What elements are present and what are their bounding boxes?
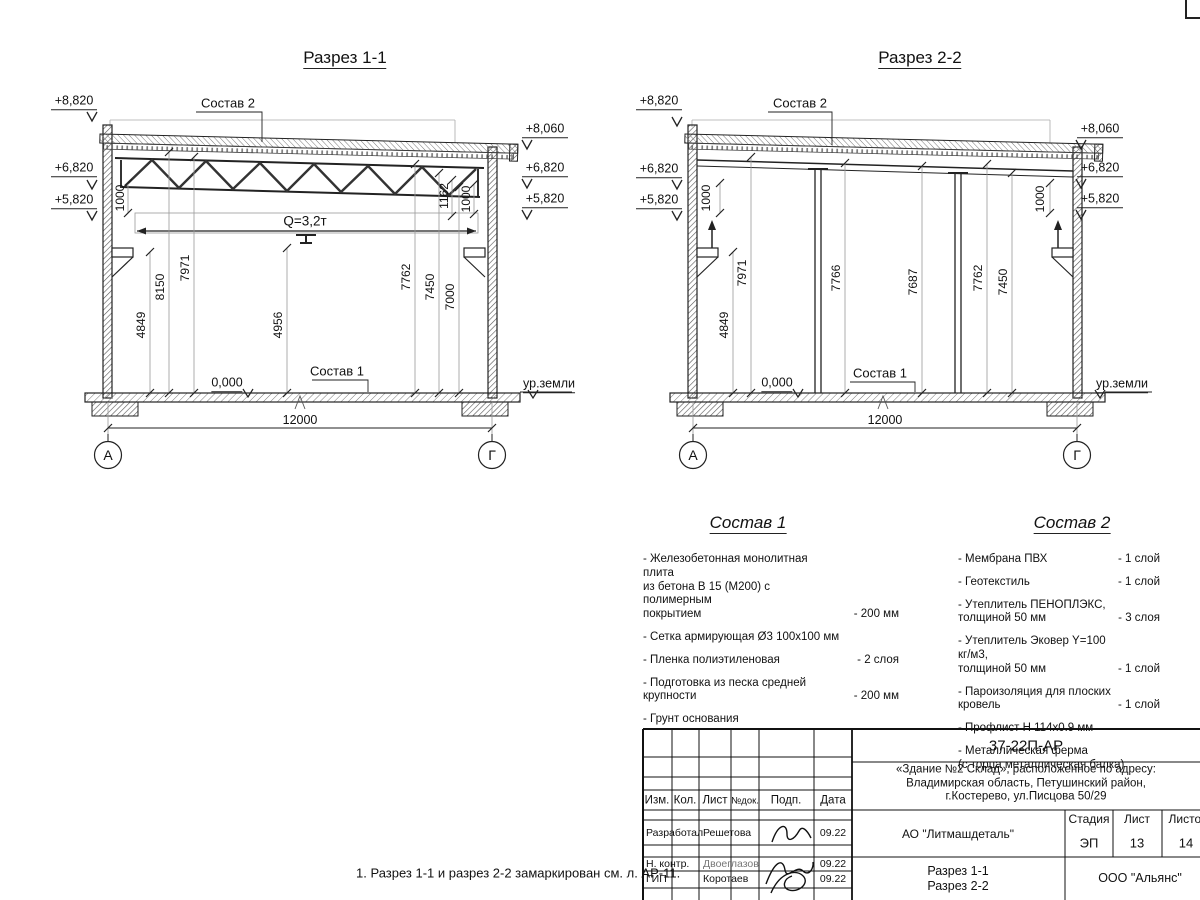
dim-label: 7450: [424, 274, 436, 301]
client-org: АО "Литмашдеталь": [902, 828, 1014, 840]
section1-axis-a: А: [103, 448, 112, 462]
col-header-ndok: №док.: [731, 796, 759, 806]
staff-role: Разработал: [646, 828, 703, 839]
list-item: - Геотекстиль - 1 слой: [958, 576, 1160, 590]
project-address-line3: г.Костерево, ул.Писцова 50/29: [946, 791, 1107, 803]
section1-zero-level: 0,000: [211, 376, 242, 392]
list-item: - Железобетонная монолитная плита из бет…: [643, 553, 899, 622]
elevation-mark: +5,820: [522, 192, 568, 208]
elevation-mark: +5,820: [1077, 192, 1123, 208]
sheet-value: 13: [1130, 837, 1144, 850]
dim-label: 7762: [400, 264, 412, 291]
elevation-mark: +6,820: [1077, 161, 1123, 177]
sheets-header: Листов: [1169, 813, 1200, 825]
staff-name: Решетова: [703, 828, 751, 839]
staff-date: 09.22: [820, 874, 846, 885]
dim-label: 7000: [444, 284, 456, 311]
list-item: - Мембрана ПВХ - 1 слой: [958, 553, 1160, 567]
elevation-mark: +8,060: [522, 122, 568, 138]
section2-ground-label: ур.земли: [1096, 377, 1148, 393]
elevation-mark: +8,820: [51, 94, 97, 110]
sheet-note: 1. Разрез 1-1 и разрез 2-2 замаркирован …: [356, 867, 680, 880]
frame-corner-mark: [1186, 0, 1200, 18]
staff-name: Коротаев: [703, 874, 748, 885]
dim-label: 1000: [114, 185, 126, 212]
staff-date: 09.22: [820, 828, 846, 839]
dim-label: 1000: [700, 185, 712, 212]
col-header-kol: Кол.: [674, 795, 697, 807]
section1-ground-label: ур.земли: [523, 377, 575, 393]
list-item: - Грунт основания: [643, 713, 899, 727]
section1-sostav2-label: Состав 2: [201, 97, 255, 110]
staff-role: Н. контр.: [646, 859, 689, 870]
design-company: ООО "Альянс": [1098, 872, 1182, 885]
project-address-line2: Владимирская область, Петушинский район,: [906, 778, 1146, 790]
section1-sostav1-label: Состав 1: [310, 365, 364, 378]
section2-sostav1-label: Состав 1: [853, 367, 907, 380]
list-item: - Сетка армирующая Ø3 100х100 мм: [643, 631, 899, 645]
dim-label: 7762: [972, 265, 984, 292]
dim-label: 4849: [718, 312, 730, 339]
list-item: - Пленка полиэтиленовая - 2 слоя: [643, 654, 899, 668]
elevation-mark: +6,820: [522, 161, 568, 177]
content-line1: Разрез 1-1: [927, 865, 988, 878]
section2-span-dim: 12000: [868, 414, 903, 427]
stage-header: Стадия: [1069, 813, 1110, 825]
drawing-sheet: Разрез 1-1 Состав 2 Состав 1 Q=3,2т 0,00…: [0, 0, 1200, 900]
list-item: - Пароизоляция для плоских кровель - 1 с…: [958, 686, 1160, 714]
dim-label: 4849: [135, 312, 147, 339]
section2-axis-g: Г: [1073, 448, 1081, 462]
col-header-data: Дата: [820, 795, 845, 807]
sostav1-heading: Состав 1: [710, 514, 787, 534]
signature-razrabotal: [772, 826, 811, 842]
dim-label: 1000: [1034, 186, 1046, 213]
list-item: - Профлист Н 114х0.9 мм: [958, 722, 1160, 736]
col-header-podp: Подп.: [771, 795, 802, 807]
project-address-line1: «Здание №2 Склад», расположенное по адре…: [896, 764, 1156, 776]
sostav2-heading: Состав 2: [1034, 514, 1111, 534]
section2-zero-level: 0,000: [761, 376, 792, 392]
col-header-izm: Изм.: [645, 795, 670, 807]
elevation-mark: +8,820: [636, 94, 682, 110]
dim-label: 7971: [736, 260, 748, 287]
content-line2: Разрез 2-2: [927, 880, 988, 893]
sostav1-list: - Железобетонная монолитная плита из бет…: [643, 553, 899, 736]
elevation-mark: +6,820: [51, 161, 97, 177]
section1-axis-g: Г: [488, 448, 496, 462]
section2-title: Разрез 2-2: [878, 49, 961, 69]
list-item: - Утеплитель ПЕНОПЛЭКС, толщиной 50 мм -…: [958, 599, 1160, 627]
dim-label: 7450: [997, 269, 1009, 296]
list-item: - Подготовка из песка средней крупности …: [643, 677, 899, 705]
signature-gip: [771, 872, 805, 893]
dim-label: 1000: [460, 186, 472, 213]
elevation-mark: +6,820: [636, 162, 682, 178]
sheets-value: 14: [1179, 837, 1193, 850]
dim-label: 1162: [438, 183, 450, 209]
dim-label: 8150: [154, 274, 166, 301]
section2-axis-a: А: [688, 448, 697, 462]
dim-label: 7766: [830, 265, 842, 292]
section2-sostav2-label: Состав 2: [773, 97, 827, 110]
dim-label: 4956: [272, 312, 284, 339]
elevation-mark: +5,820: [636, 193, 682, 209]
document-code: 37-22П-АР: [989, 739, 1063, 754]
dim-label: 7687: [907, 269, 919, 296]
section1-title: Разрез 1-1: [303, 49, 386, 69]
staff-date: 09.22: [820, 859, 846, 870]
section1-span-dim: 12000: [283, 414, 318, 427]
elevation-mark: +5,820: [51, 193, 97, 209]
elevation-mark: +8,060: [1077, 122, 1123, 138]
staff-name: Двоеглазов: [703, 859, 759, 870]
stage-value: ЭП: [1080, 837, 1099, 850]
sheet-header: Лист: [1124, 813, 1150, 825]
section1-crane-capacity: Q=3,2т: [283, 214, 326, 228]
col-header-list: Лист: [703, 795, 728, 807]
dim-label: 7971: [179, 255, 191, 282]
staff-role: ГИП: [646, 874, 667, 885]
list-item: - Утеплитель Эковер Y=100 кг/м3, толщино…: [958, 635, 1160, 676]
